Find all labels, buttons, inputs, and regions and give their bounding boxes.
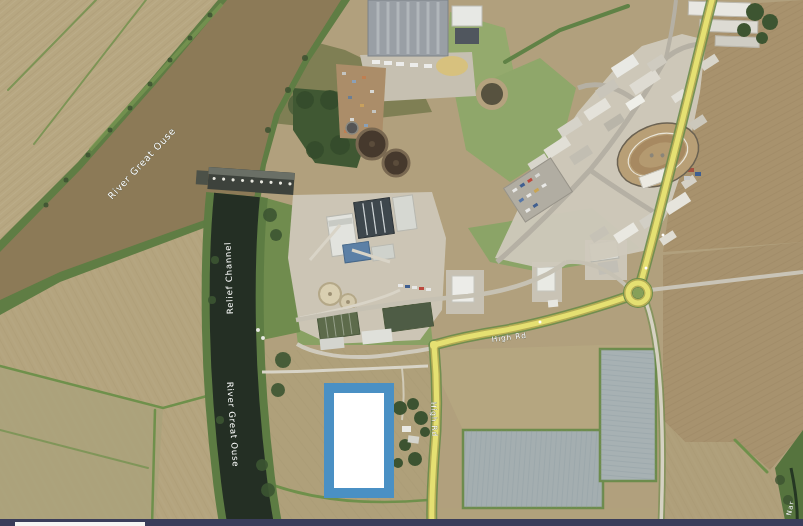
bottom-bar-inset — [15, 522, 145, 526]
aerial-map-figure: River Great Ouse Relief Channel River Gr… — [0, 0, 803, 526]
pond — [481, 83, 503, 105]
aerial-map[interactable]: River Great Ouse Relief Channel River Gr… — [0, 0, 803, 526]
bottom-bar — [0, 519, 803, 526]
roundabout — [628, 283, 648, 303]
polytunnel-field-west — [463, 430, 603, 508]
aeration-tanks — [354, 198, 395, 239]
label-high-rd-south: High Rd — [429, 402, 439, 437]
polytunnel-field-east — [600, 349, 656, 481]
scrap-yard — [336, 64, 386, 140]
site-highlight-rectangle — [324, 383, 394, 498]
